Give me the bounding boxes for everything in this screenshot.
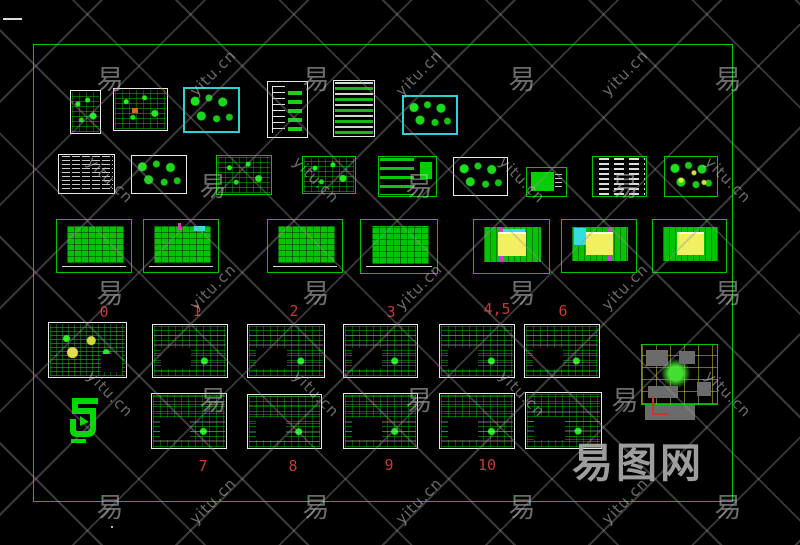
sheet-label-2[interactable]: 2 xyxy=(289,304,298,319)
site-gray-block xyxy=(646,350,668,366)
drawing-thumbnail-r1b[interactable] xyxy=(113,88,168,131)
drawing-thumbnail-sheet7[interactable] xyxy=(151,393,227,449)
cad-linework xyxy=(335,82,373,135)
drawing-thumbnail-r3g[interactable] xyxy=(652,219,727,273)
cad-linework xyxy=(218,157,270,193)
cad-linework xyxy=(145,221,217,271)
cad-linework xyxy=(304,158,354,192)
cad-linework xyxy=(654,221,725,271)
cad-linework xyxy=(441,326,513,376)
drawing-thumbnail-sheet4-5[interactable] xyxy=(439,324,515,378)
cad-linework xyxy=(380,158,435,195)
drawing-thumbnail-r2f[interactable] xyxy=(453,157,508,196)
cad-linework xyxy=(58,221,130,271)
drawing-thumbnail-r3a[interactable] xyxy=(56,219,132,273)
cad-canvas[interactable]: 0 1 2 3 4,5 6 7 8 9 10 易yitu.cn易yitu.cn易… xyxy=(0,0,800,545)
cad-linework xyxy=(563,221,635,271)
drawing-thumbnail-r2h[interactable] xyxy=(592,156,647,197)
site-gray-block xyxy=(697,382,711,396)
drawing-thumbnail-sheet2[interactable] xyxy=(247,324,325,378)
drawing-thumbnail-r3e[interactable] xyxy=(473,219,550,274)
sheet-label-1[interactable]: 1 xyxy=(192,304,201,319)
cad-linework xyxy=(475,221,548,272)
cad-linework xyxy=(441,395,513,447)
cad-linework xyxy=(50,324,125,376)
cad-linework xyxy=(249,396,320,447)
cad-linework xyxy=(269,221,341,271)
cad-linework xyxy=(60,156,113,192)
drawing-thumbnail-r2i[interactable] xyxy=(664,156,718,197)
drawing-thumbnail-r2d[interactable] xyxy=(302,156,356,194)
sheet-label-10[interactable]: 10 xyxy=(478,458,496,473)
cad-linework xyxy=(345,326,416,376)
drawing-thumbnail-r1c[interactable] xyxy=(183,87,240,133)
cad-linework xyxy=(249,326,323,376)
drawing-thumbnail-r1a[interactable] xyxy=(70,90,101,134)
cad-linework xyxy=(528,169,565,195)
accent-cyan xyxy=(574,228,586,245)
drawing-thumbnail-r3b[interactable] xyxy=(143,219,219,273)
stray-point xyxy=(111,526,113,528)
cad-linework xyxy=(133,157,185,192)
sheet-label-8[interactable]: 8 xyxy=(288,459,297,474)
sheet-label-3[interactable]: 3 xyxy=(386,305,395,320)
cad-linework xyxy=(154,326,226,376)
drawing-thumbnail-r1e[interactable] xyxy=(333,80,375,137)
drawing-thumbnail-r2e[interactable] xyxy=(378,156,437,197)
drawing-thumbnail-r3c[interactable] xyxy=(267,219,343,273)
cad-linework xyxy=(362,221,436,272)
drawing-thumbnail-sheet0[interactable] xyxy=(48,322,127,378)
site-plan-thumbnail[interactable] xyxy=(641,344,718,422)
cad-linework xyxy=(186,90,237,130)
drawing-thumbnail-sheet3[interactable] xyxy=(343,324,418,378)
drawing-thumbnail-r2a[interactable] xyxy=(58,154,115,194)
sheet-label-0[interactable]: 0 xyxy=(99,305,108,320)
cad-linework xyxy=(455,159,506,194)
drawing-thumbnail-sheet10[interactable] xyxy=(439,393,515,449)
sheet-label-6[interactable]: 6 xyxy=(558,304,567,319)
drawing-thumbnail-r2g[interactable] xyxy=(526,167,567,197)
accent-magenta xyxy=(499,228,503,262)
drawing-thumbnail-r3d[interactable] xyxy=(360,219,438,274)
drawing-thumbnail-sheet1[interactable] xyxy=(152,324,228,378)
cad-linework xyxy=(594,158,645,195)
cad-linework xyxy=(526,326,598,376)
sheet-label-4-5[interactable]: 4,5 xyxy=(483,302,510,317)
site-gray-block xyxy=(679,351,695,364)
cad-linework xyxy=(666,158,716,195)
drawing-thumbnail-r3f[interactable] xyxy=(561,219,637,273)
accent-magenta xyxy=(608,228,612,261)
drawing-thumbnail-r2b[interactable] xyxy=(131,155,187,194)
drawing-thumbnail-sheet6[interactable] xyxy=(524,324,600,378)
cad-linework xyxy=(153,395,225,447)
drawing-thumbnail-r5e[interactable] xyxy=(525,392,602,449)
accent-magenta xyxy=(178,223,181,229)
drawing-thumbnail-sheet8[interactable] xyxy=(247,394,322,449)
sheet-label-9[interactable]: 9 xyxy=(384,458,393,473)
accent-yellow-dots xyxy=(666,158,716,195)
stair-detail-drawing[interactable] xyxy=(64,397,102,444)
drawing-thumbnail-r1d[interactable] xyxy=(267,81,308,138)
cad-linework xyxy=(115,90,166,129)
drawing-thumbnail-r1f[interactable] xyxy=(402,95,458,135)
cad-linework xyxy=(269,83,306,136)
cad-linework xyxy=(527,394,600,447)
cad-linework xyxy=(72,92,99,132)
sheet-label-7[interactable]: 7 xyxy=(198,459,207,474)
ucs-tick-mark xyxy=(3,18,22,20)
accent-cyan xyxy=(503,229,525,238)
cad-linework xyxy=(405,98,455,132)
accent-cyan xyxy=(194,226,205,231)
accent-orange xyxy=(132,108,138,113)
drawing-thumbnail-sheet9[interactable] xyxy=(343,393,418,449)
cad-linework xyxy=(345,395,416,447)
site-red-mark xyxy=(652,396,668,415)
drawing-thumbnail-r2c[interactable] xyxy=(216,155,272,195)
